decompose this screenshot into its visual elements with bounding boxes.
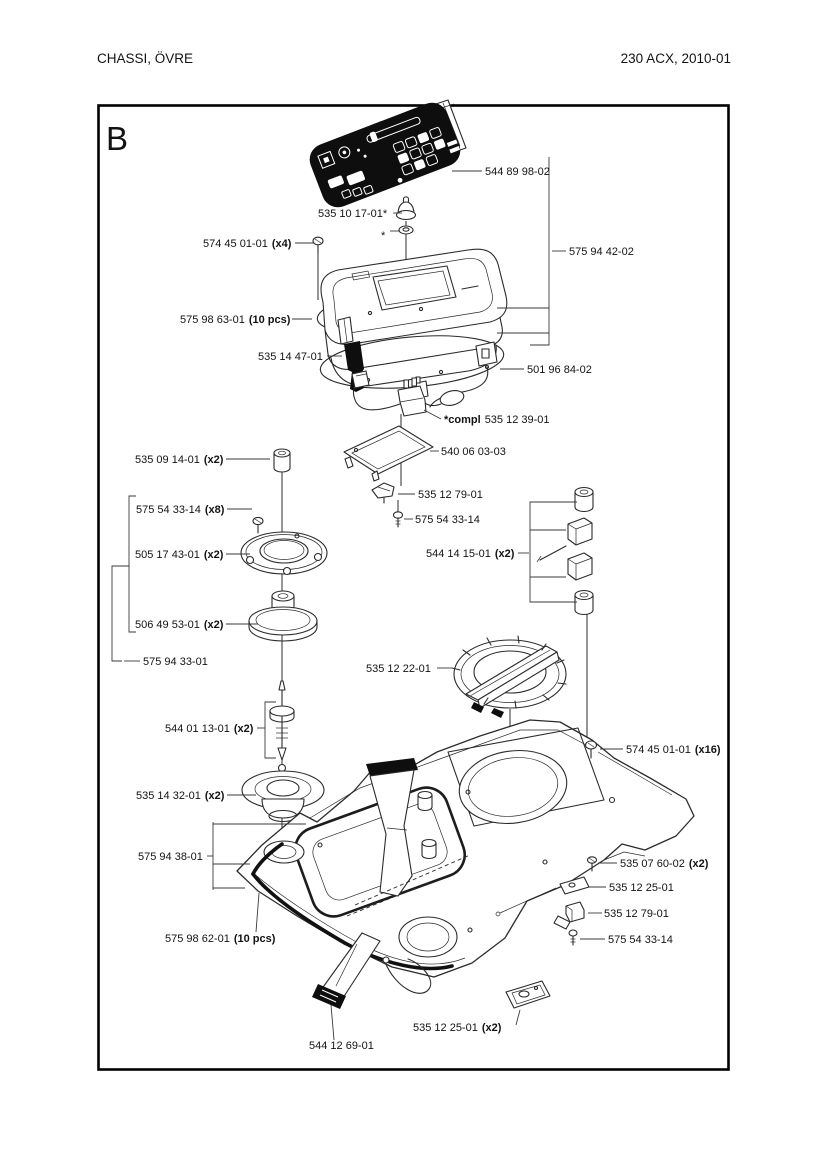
label-power-cable: 501 96 84-02 <box>527 364 592 376</box>
flange-ring-part <box>241 532 327 575</box>
label-plate-right: 535 12 25-01 <box>609 882 674 894</box>
label-circuit-plate: 540 06 03-03 <box>441 446 506 458</box>
screw-part-mid <box>394 512 403 527</box>
page-title: CHASSI, ÖVRE <box>97 51 193 66</box>
label-screw-mid: 575 54 33-14 <box>415 514 480 526</box>
screw-x8-part <box>253 517 263 533</box>
label-antenna-pin: 544 01 13-01(x2) <box>165 723 254 735</box>
label-contact-holders: 544 14 15-01(x2) <box>426 548 515 560</box>
label-plate-bottom: 535 12 25-01(x2) <box>413 1022 502 1034</box>
spacer-cylinder-part <box>274 449 290 472</box>
label-bushing: 506 49 53-01(x2) <box>135 619 224 631</box>
parts-manual-page: CHASSI, ÖVRE 230 ACX, 2010-01 B <box>0 0 826 1169</box>
clip-part-upper <box>372 483 394 503</box>
dial-part <box>452 636 566 718</box>
display-cover-part <box>318 249 507 395</box>
circuit-plate-part <box>344 426 433 481</box>
model-revision: 230 ACX, 2010-01 <box>621 51 731 66</box>
label-spacer: 535 09 14-01(x2) <box>135 454 224 466</box>
keypad-part <box>305 98 465 212</box>
bushing-part <box>249 591 317 641</box>
label-grommet: 535 14 32-01(x2) <box>136 790 225 802</box>
label-screw-bottom: 575 54 33-14 <box>608 934 673 946</box>
clip-part-lower <box>554 902 584 929</box>
label-dial: 535 12 22-01 <box>366 663 431 675</box>
connector-assembly-part <box>352 371 426 416</box>
cover-plate-part-bottom <box>506 981 550 1008</box>
section-letter: B <box>106 120 128 157</box>
label-clip-upper: 535 12 79-01 <box>418 489 483 501</box>
label-connector: *compl535 12 39-01 <box>444 414 550 426</box>
label-screw-x8: 575 54 33-14(x8) <box>136 504 225 516</box>
screw-x4-part <box>313 237 323 253</box>
knob-part <box>397 197 416 220</box>
label-rubber-strip: 535 14 47-01 <box>258 351 323 363</box>
label-body-assembly: 575 94 38-01 <box>138 851 203 863</box>
label-cover-seal: 575 98 63-01(10 pcs) <box>180 314 291 326</box>
label-cover-assembly: 575 94 42-02 <box>569 246 634 258</box>
label-screw-60: 535 07 60-02(x2) <box>620 858 709 870</box>
exploded-diagram-svg: CHASSI, ÖVRE 230 ACX, 2010-01 B <box>0 0 826 1169</box>
label-ribbon-harness: 544 12 69-01 <box>309 1040 374 1052</box>
label-keypad: 544 89 98-02 <box>485 166 550 178</box>
screw-part-bottom <box>569 930 577 945</box>
label-knob: 535 10 17-01* <box>318 208 388 220</box>
label-left-assembly: 575 94 33-01 <box>143 656 208 668</box>
grommet-part <box>242 771 324 822</box>
label-clip-lower: 535 12 79-01 <box>604 908 669 920</box>
washer-part <box>399 226 413 234</box>
label-chassis-seal: 575 98 62-01(10 pcs) <box>165 933 276 945</box>
contact-holder-parts <box>537 488 593 615</box>
label-flange-ring: 505 17 43-01(x2) <box>135 549 224 561</box>
label-asterisk: * <box>381 230 386 242</box>
label-screw-x16: 574 45 01-01(x16) <box>626 744 721 756</box>
label-screw-x4: 574 45 01-01(x4) <box>203 238 292 250</box>
